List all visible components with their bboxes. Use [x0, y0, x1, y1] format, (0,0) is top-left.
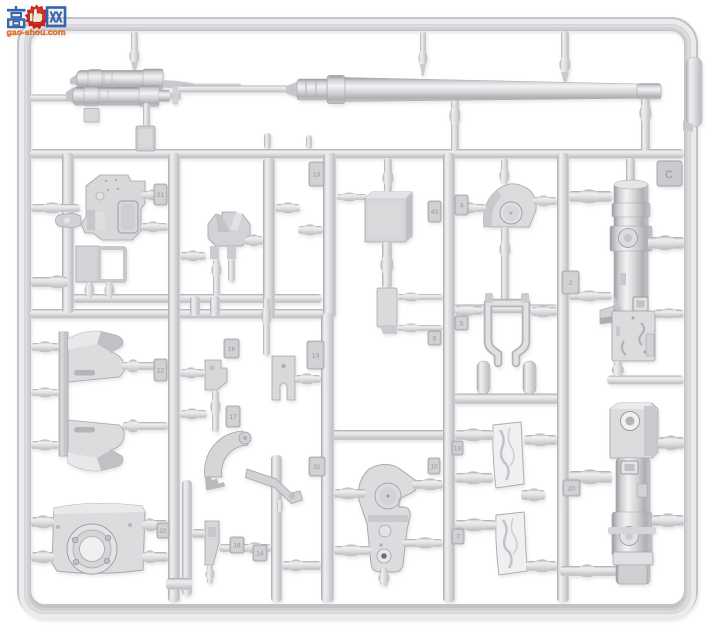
svg-text:C: C [665, 169, 673, 181]
svg-text:2: 2 [569, 280, 573, 287]
svg-text:17: 17 [229, 414, 237, 421]
svg-text:31: 31 [313, 464, 321, 471]
svg-text:6: 6 [433, 335, 437, 342]
svg-text:20: 20 [568, 485, 576, 492]
svg-text:7: 7 [456, 534, 460, 541]
svg-text:19: 19 [454, 445, 462, 452]
svg-text:13: 13 [313, 171, 321, 178]
svg-text:4: 4 [460, 202, 464, 209]
svg-text:16: 16 [228, 346, 236, 353]
svg-text:13: 13 [312, 352, 320, 359]
svg-text:21: 21 [157, 192, 165, 199]
svg-text:18: 18 [233, 542, 241, 549]
svg-text:12: 12 [157, 367, 165, 374]
svg-text:gao-shou.com: gao-shou.com [7, 27, 66, 37]
svg-text:43: 43 [431, 209, 439, 216]
svg-text:14: 14 [256, 550, 264, 557]
svg-text:22: 22 [159, 528, 167, 535]
svg-text:5: 5 [460, 320, 464, 327]
svg-text:10: 10 [430, 463, 438, 470]
